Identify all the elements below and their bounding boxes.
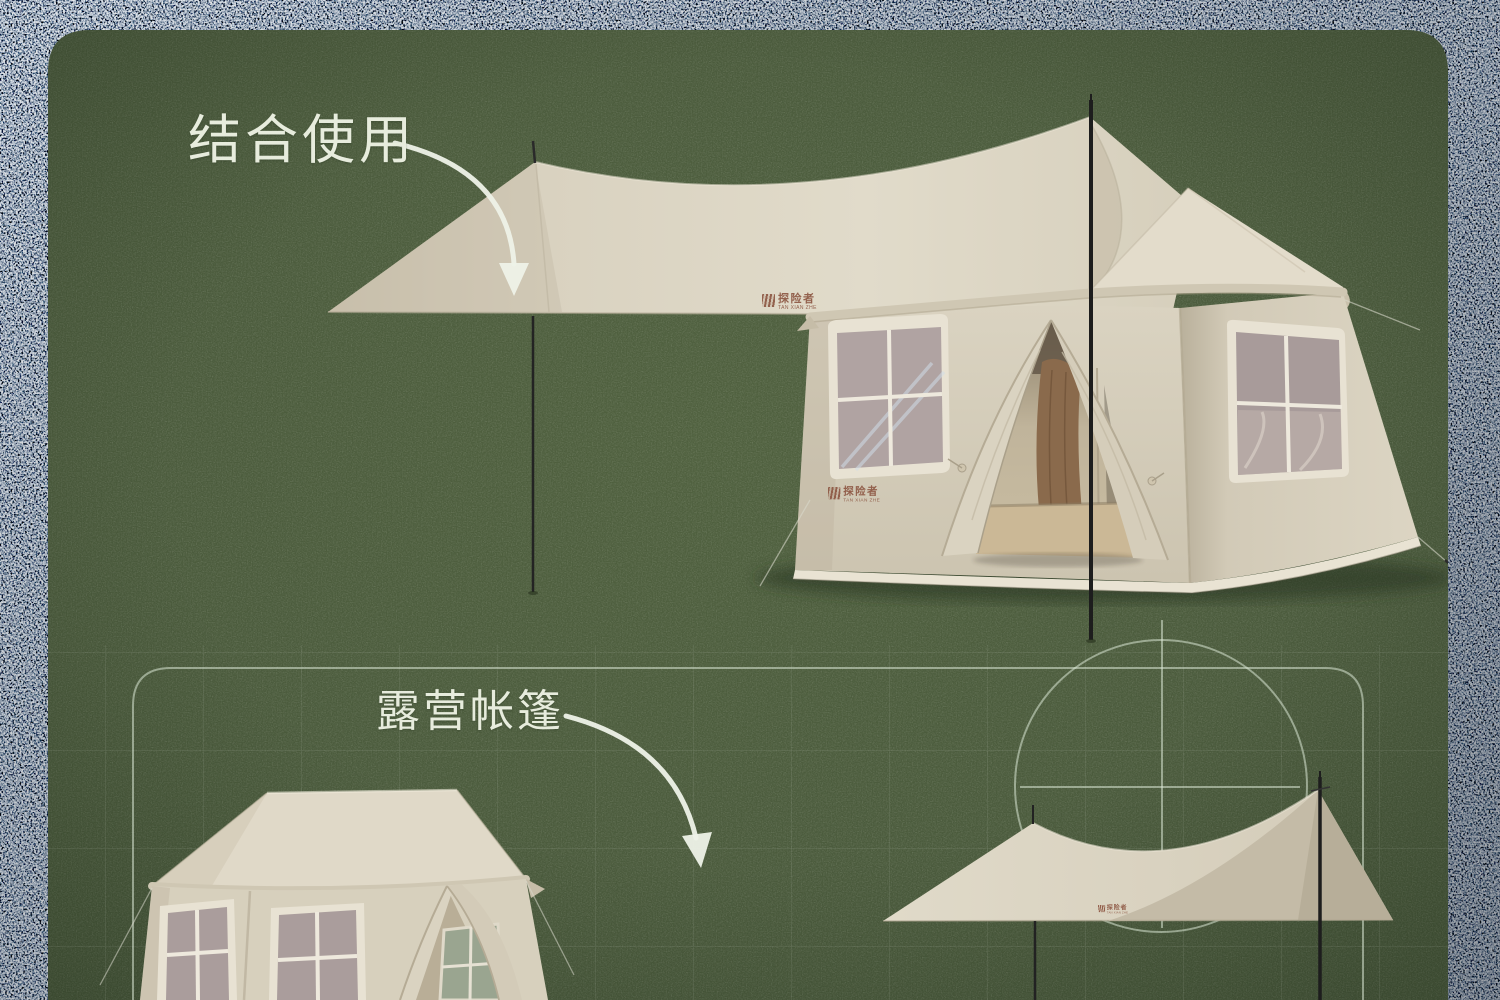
brand-latin: TAN XIAN ZHE bbox=[778, 306, 817, 311]
brand-logo-tarp: 探险者 TAN XIAN ZHE bbox=[762, 294, 817, 311]
product-detail-image: 结合使用 露营帐篷 探险者 TAN XIAN ZHE 探险者 TAN XIAN … bbox=[0, 0, 1500, 1000]
brand-name: 探险者 bbox=[778, 294, 817, 305]
label-combined-use: 结合使用 bbox=[188, 112, 416, 170]
brand-latin: TAN XIAN ZHE bbox=[1107, 912, 1128, 915]
tent-window-front bbox=[828, 314, 950, 479]
door-floor bbox=[976, 503, 1137, 557]
brand-tent-icon bbox=[828, 487, 840, 499]
brand-name: 探险者 bbox=[843, 487, 880, 497]
brand-tent-icon bbox=[1098, 905, 1105, 912]
brand-logo-tent: 探险者 TAN XIAN ZHE bbox=[828, 487, 880, 503]
tent-window-side bbox=[1227, 320, 1349, 483]
bottom-tent-window-front bbox=[269, 903, 366, 1000]
brand-tent-icon bbox=[762, 294, 775, 307]
label-camping-tent: 露营帐篷 bbox=[376, 688, 564, 736]
brand-logo-small-tarp: 探险者 TAN XIAN ZHE bbox=[1098, 905, 1128, 914]
bottom-tent-window-left bbox=[157, 899, 237, 1000]
brand-latin: TAN XIAN ZHE bbox=[843, 498, 880, 503]
